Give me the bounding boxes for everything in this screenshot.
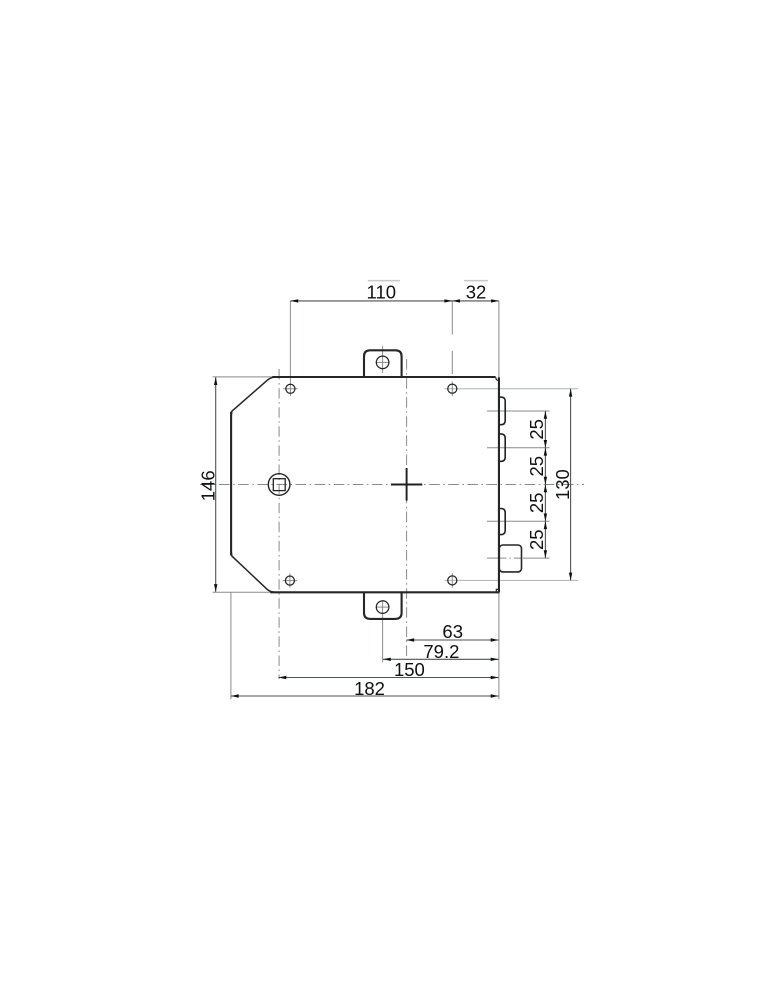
svg-text:25: 25 <box>526 456 547 477</box>
svg-text:63: 63 <box>442 621 463 642</box>
svg-text:130: 130 <box>552 469 573 500</box>
svg-text:150: 150 <box>394 659 425 680</box>
svg-text:182: 182 <box>354 678 385 699</box>
svg-text:25: 25 <box>526 493 547 514</box>
svg-text:25: 25 <box>526 529 547 550</box>
svg-text:32: 32 <box>466 281 487 302</box>
svg-text:25: 25 <box>526 419 547 440</box>
svg-text:79.2: 79.2 <box>423 641 459 662</box>
svg-text:110: 110 <box>367 281 397 302</box>
svg-text:146: 146 <box>197 470 218 501</box>
